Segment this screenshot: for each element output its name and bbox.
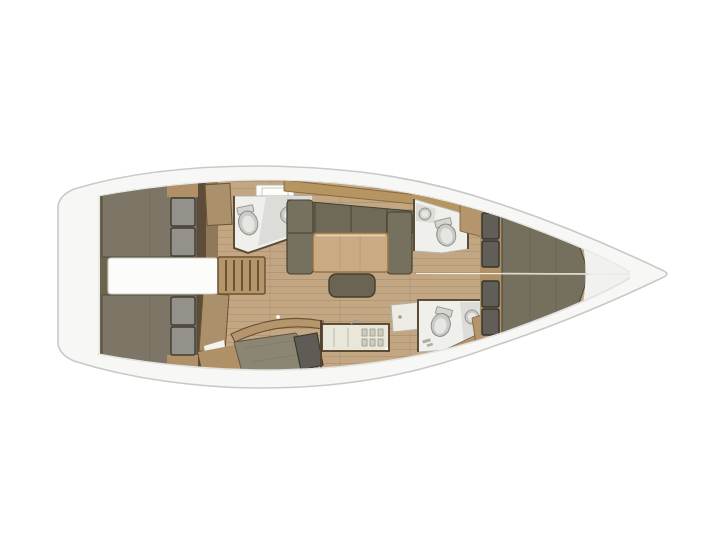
- ottoman: [329, 274, 375, 297]
- berth-split: [502, 274, 589, 275]
- galley-counter: [322, 324, 389, 351]
- cabin-door: [205, 183, 232, 225]
- pillow: [171, 198, 195, 226]
- companionway-steps: [218, 257, 265, 294]
- pillow: [171, 297, 195, 325]
- pillow: [171, 228, 195, 256]
- pillow: [171, 327, 195, 355]
- counter-dot: [385, 347, 388, 350]
- yacht-floorplan-canvas: [0, 0, 720, 540]
- sink-basin: [421, 210, 428, 217]
- settee-left-arm: [287, 200, 313, 274]
- shower-drain: [398, 315, 402, 319]
- yacht-floorplan: [0, 0, 720, 540]
- seat-knob: [276, 315, 280, 319]
- saloon-table: [313, 233, 388, 272]
- engine-compartment: [108, 258, 218, 294]
- settee-right-arm: [387, 212, 412, 274]
